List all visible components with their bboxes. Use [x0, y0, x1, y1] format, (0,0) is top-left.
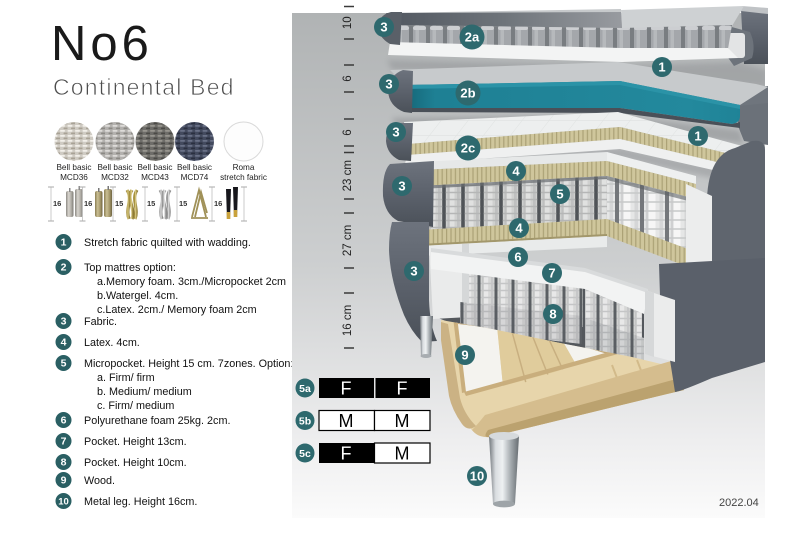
- svg-text:MCD36: MCD36: [60, 173, 88, 182]
- svg-text:MCD32: MCD32: [101, 173, 129, 182]
- svg-text:8: 8: [549, 307, 556, 322]
- svg-text:7: 7: [548, 266, 555, 281]
- svg-text:7: 7: [61, 436, 67, 448]
- svg-text:5b: 5b: [299, 416, 311, 428]
- svg-text:2b: 2b: [460, 86, 475, 101]
- svg-text:stretch fabric: stretch fabric: [220, 173, 267, 182]
- svg-text:3: 3: [61, 316, 67, 328]
- svg-text:15: 15: [115, 199, 123, 208]
- svg-text:27 cm: 27 cm: [342, 225, 354, 256]
- svg-text:16: 16: [53, 199, 61, 208]
- svg-text:2c: 2c: [461, 141, 475, 156]
- svg-text:2: 2: [61, 262, 67, 274]
- svg-text:2a: 2a: [465, 30, 480, 45]
- svg-text:9: 9: [461, 348, 468, 363]
- svg-text:15: 15: [147, 199, 155, 208]
- svg-text:Top mattres option:: Top mattres option:: [84, 262, 176, 274]
- svg-text:c.Latex. 2cm./ Memory foam 2cm: c.Latex. 2cm./ Memory foam 2cm: [97, 304, 257, 316]
- svg-text:3: 3: [385, 77, 392, 92]
- svg-text:Roma: Roma: [233, 163, 255, 172]
- svg-text:1: 1: [61, 237, 67, 249]
- svg-text:c. Firm/ medium: c. Firm/ medium: [97, 400, 174, 412]
- svg-text:3: 3: [410, 264, 417, 279]
- svg-text:1: 1: [658, 60, 665, 75]
- svg-text:4: 4: [512, 164, 520, 179]
- svg-text:Bell basic: Bell basic: [97, 163, 132, 172]
- svg-text:15: 15: [179, 199, 187, 208]
- svg-text:M: M: [395, 411, 410, 431]
- svg-text:3: 3: [380, 20, 387, 35]
- svg-text:Polyurethane foam 25kg. 2cm.: Polyurethane foam 25kg. 2cm.: [84, 415, 230, 427]
- svg-text:1: 1: [694, 129, 701, 144]
- svg-text:3: 3: [392, 125, 399, 140]
- svg-text:F: F: [341, 379, 352, 399]
- svg-text:F: F: [397, 379, 408, 399]
- svg-text:6: 6: [61, 415, 67, 427]
- svg-text:Fabric.: Fabric.: [84, 316, 117, 328]
- svg-text:2022.04: 2022.04: [719, 497, 759, 509]
- svg-text:b.Watergel. 4cm.: b.Watergel. 4cm.: [97, 290, 178, 302]
- svg-text:6: 6: [342, 75, 354, 81]
- svg-text:Pocket. Height 10cm.: Pocket. Height 10cm.: [84, 457, 187, 469]
- svg-text:Stretch fabric quilted with wa: Stretch fabric quilted with wadding.: [84, 237, 251, 249]
- svg-text:16 cm: 16 cm: [342, 305, 354, 336]
- svg-text:MCD74: MCD74: [181, 173, 209, 182]
- svg-text:Metal leg. Height 16cm.: Metal leg. Height 16cm.: [84, 496, 197, 508]
- svg-text:9: 9: [61, 475, 67, 487]
- svg-text:a.Memory foam. 3cm./Micropocke: a.Memory foam. 3cm./Micropocket 2cm: [97, 276, 286, 288]
- svg-text:F: F: [341, 444, 352, 464]
- svg-text:4: 4: [515, 221, 523, 236]
- svg-text:Bell basic: Bell basic: [56, 163, 91, 172]
- svg-text:M: M: [339, 411, 354, 431]
- svg-text:Wood.: Wood.: [84, 475, 115, 487]
- svg-text:b. Medium/ medium: b. Medium/ medium: [97, 386, 192, 398]
- svg-text:6: 6: [342, 129, 354, 135]
- svg-text:M: M: [395, 444, 410, 464]
- svg-text:Pocket. Height 13cm.: Pocket. Height 13cm.: [84, 436, 187, 448]
- svg-text:6: 6: [514, 250, 521, 265]
- svg-text:10: 10: [58, 497, 69, 508]
- svg-text:5: 5: [61, 358, 67, 370]
- svg-text:MCD43: MCD43: [141, 173, 169, 182]
- svg-text:a. Firm/ firm: a. Firm/ firm: [97, 372, 155, 384]
- svg-text:5a: 5a: [299, 383, 311, 395]
- svg-text:16: 16: [84, 199, 92, 208]
- svg-text:10: 10: [470, 469, 484, 484]
- svg-text:8: 8: [61, 457, 67, 469]
- svg-text:4: 4: [61, 337, 67, 349]
- svg-text:3: 3: [398, 179, 405, 194]
- svg-text:5: 5: [556, 187, 563, 202]
- svg-text:Micropocket. Height 15 cm. 7zo: Micropocket. Height 15 cm. 7zones. Optio…: [84, 358, 292, 370]
- svg-text:23 cm: 23 cm: [342, 160, 354, 191]
- svg-text:5c: 5c: [299, 448, 311, 460]
- svg-text:Bell basic: Bell basic: [137, 163, 172, 172]
- svg-text:Bell basic: Bell basic: [177, 163, 212, 172]
- svg-text:16: 16: [214, 199, 222, 208]
- svg-text:Latex. 4cm.: Latex. 4cm.: [84, 337, 140, 349]
- svg-text:10: 10: [342, 16, 354, 29]
